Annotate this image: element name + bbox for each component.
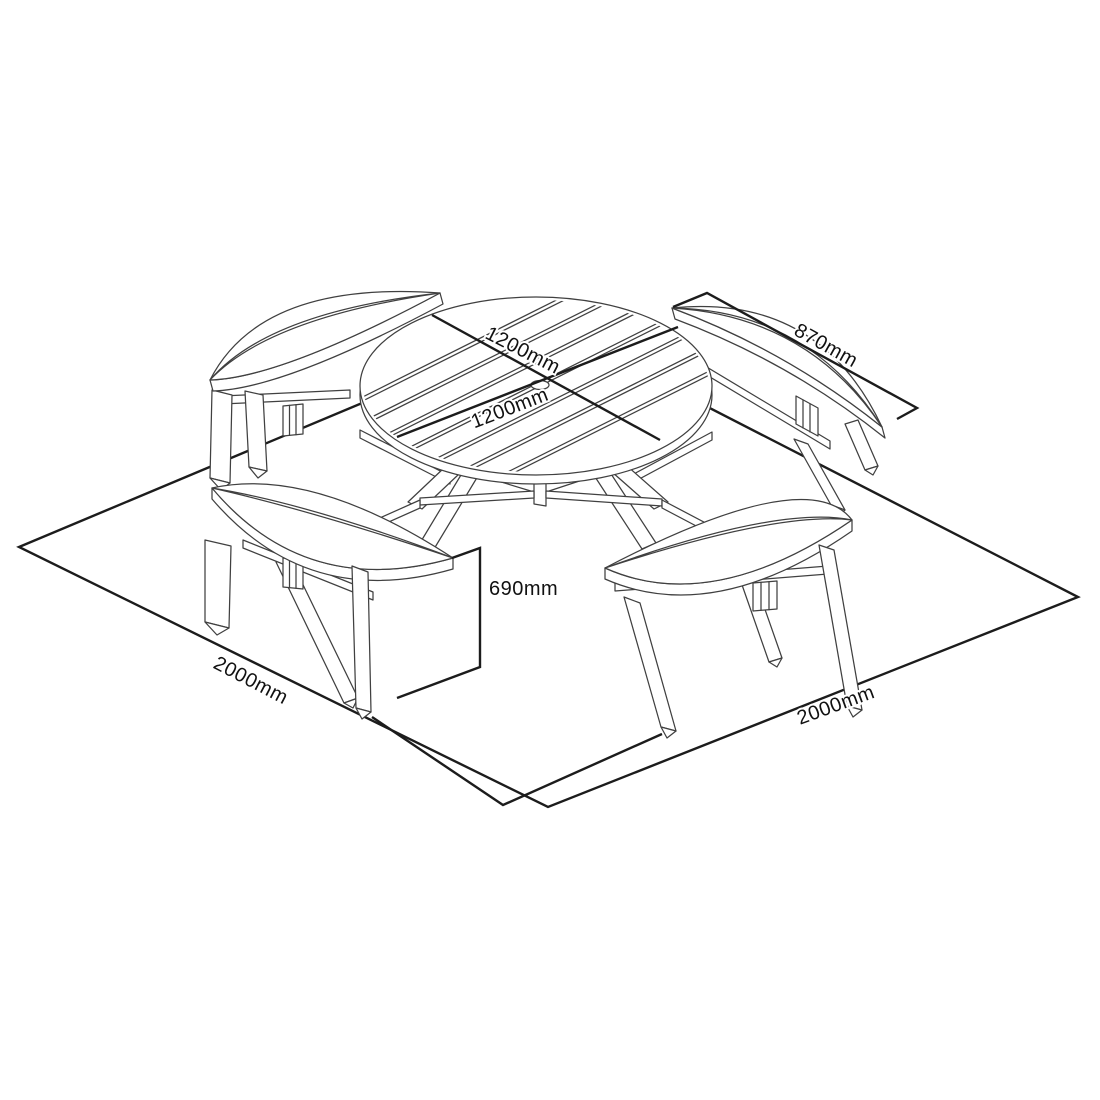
diagram-page: 1200mm 1200mm 870mm 690mm 2000mm 2000mm	[0, 0, 1100, 1100]
dim-label-footprint-right: 2000mm	[794, 681, 877, 729]
bench-rail	[222, 390, 350, 404]
bench-center-block	[283, 404, 303, 436]
bench-leg	[819, 545, 862, 710]
bench-leg	[624, 597, 676, 731]
bench-leg	[245, 391, 267, 471]
bench-leg	[205, 540, 231, 628]
picnic-table-diagram: 1200mm 1200mm 870mm 690mm 2000mm 2000mm	[0, 0, 1100, 1100]
dim-label-seat-height: 690mm	[489, 578, 558, 600]
bench-center-block	[753, 581, 777, 611]
bench-leg	[210, 390, 232, 483]
